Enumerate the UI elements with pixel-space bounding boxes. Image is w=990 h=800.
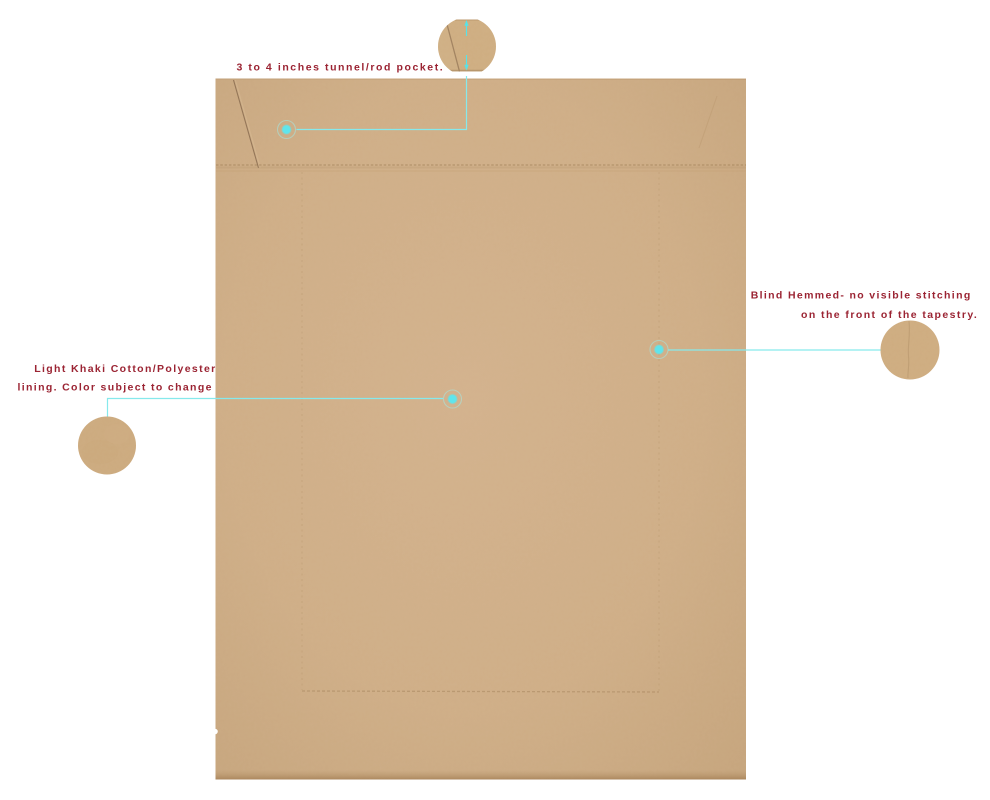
svg-text:3 to 4 inches tunnel/rod pocke: 3 to 4 inches tunnel/rod pocket.	[237, 62, 445, 74]
svg-text:Light Khaki Cotton/Polyester: Light Khaki Cotton/Polyester	[34, 363, 216, 375]
svg-text:on the front of the tapestry.: on the front of the tapestry.	[801, 309, 978, 321]
svg-text:Blind Hemmed- no visible stitc: Blind Hemmed- no visible stitching	[751, 290, 972, 302]
svg-text:lining. Color subject to chang: lining. Color subject to change	[18, 382, 213, 394]
